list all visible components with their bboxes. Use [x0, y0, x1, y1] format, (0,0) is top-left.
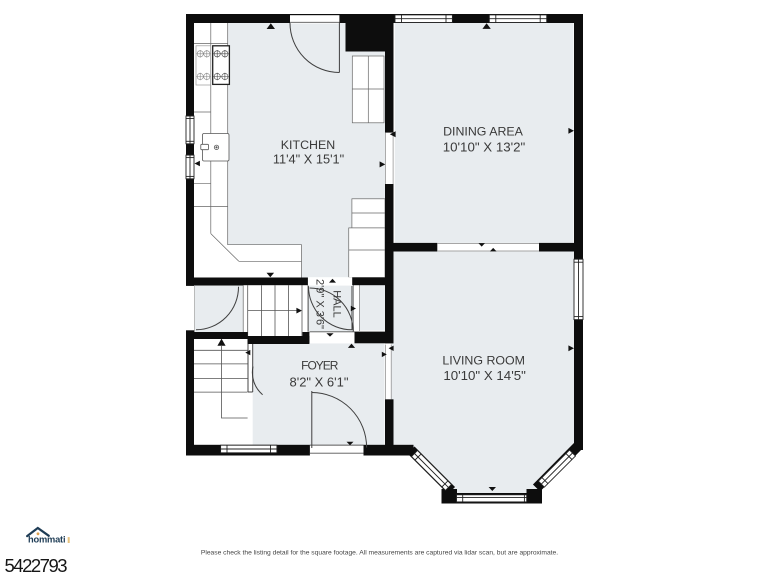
svg-text:11'4" X 15'1": 11'4" X 15'1" — [273, 151, 344, 166]
svg-text:8'2" X 6'1": 8'2" X 6'1" — [289, 374, 348, 389]
svg-text:LIVING ROOM: LIVING ROOM — [442, 354, 525, 368]
svg-text:Please check the listing detai: Please check the listing detail for the … — [201, 550, 558, 557]
svg-text:hommati: hommati — [28, 535, 65, 545]
svg-text:10'10" X 14'5": 10'10" X 14'5" — [443, 368, 526, 383]
svg-text:KITCHEN: KITCHEN — [281, 138, 335, 152]
svg-text:10'10" X 13'2": 10'10" X 13'2" — [443, 139, 526, 154]
svg-text:FOYER: FOYER — [301, 359, 339, 373]
svg-text:5422793: 5422793 — [5, 555, 68, 576]
svg-text:2'9" X 3'6": 2'9" X 3'6" — [314, 279, 326, 329]
svg-text:HALL: HALL — [331, 290, 343, 318]
svg-text:DINING AREA: DINING AREA — [443, 125, 524, 139]
